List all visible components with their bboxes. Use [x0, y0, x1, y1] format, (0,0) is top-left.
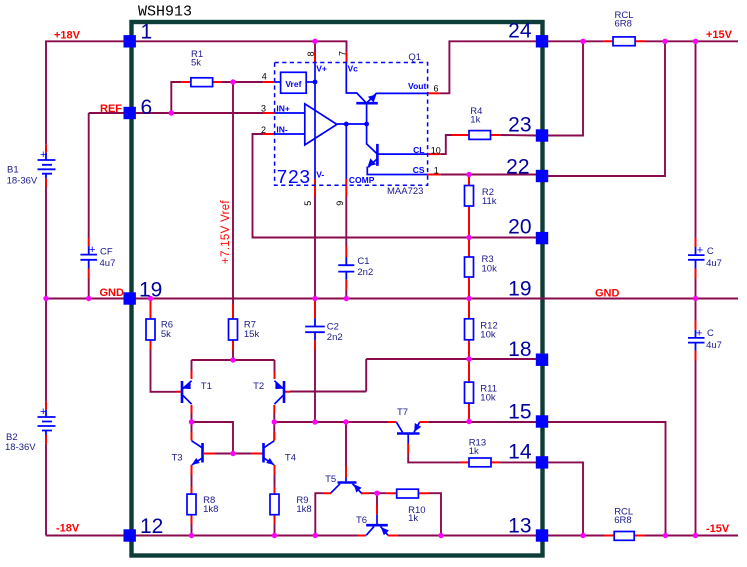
svg-text:CL: CL	[413, 145, 424, 155]
svg-text:T5: T5	[325, 474, 336, 485]
svg-text:4u7: 4u7	[706, 258, 722, 269]
svg-text:9: 9	[335, 201, 345, 206]
svg-text:19: 19	[139, 279, 162, 302]
svg-text:13: 13	[508, 515, 531, 538]
svg-text:+: +	[89, 244, 95, 256]
svg-text:2n2: 2n2	[357, 267, 373, 278]
svg-text:18-36V: 18-36V	[5, 442, 36, 453]
svg-text:Vc: Vc	[348, 63, 359, 73]
svg-text:+: +	[697, 245, 703, 257]
svg-text:1: 1	[434, 165, 439, 175]
svg-text:1k8: 1k8	[296, 504, 311, 515]
svg-text:GND: GND	[100, 287, 125, 299]
svg-text:Q1: Q1	[408, 52, 421, 63]
svg-text:+: +	[40, 149, 46, 161]
svg-text:15k: 15k	[244, 329, 260, 340]
svg-text:GND: GND	[595, 288, 620, 300]
svg-text:CS: CS	[413, 165, 425, 175]
svg-text:15: 15	[508, 401, 531, 424]
svg-text:REF: REF	[100, 103, 122, 115]
svg-text:7: 7	[337, 51, 347, 56]
svg-text:10k: 10k	[480, 330, 496, 341]
svg-text:23: 23	[508, 114, 531, 137]
svg-text:4u7: 4u7	[100, 258, 116, 269]
svg-text:3: 3	[261, 103, 266, 113]
svg-text:6R8: 6R8	[614, 515, 631, 526]
svg-text:Vout: Vout	[408, 81, 426, 91]
svg-text:IN+: IN+	[276, 103, 290, 113]
svg-text:+: +	[696, 328, 702, 340]
svg-text:19: 19	[508, 278, 531, 301]
svg-text:WSH913: WSH913	[138, 4, 192, 21]
svg-text:20: 20	[508, 216, 531, 239]
svg-text:11k: 11k	[482, 196, 497, 207]
svg-text:24: 24	[508, 20, 532, 43]
svg-text:4: 4	[262, 71, 267, 81]
svg-text:6R8: 6R8	[615, 19, 632, 30]
svg-text:C: C	[707, 246, 714, 257]
svg-text:CF: CF	[100, 246, 113, 257]
svg-text:C: C	[707, 328, 714, 339]
svg-text:12: 12	[140, 515, 163, 538]
svg-text:IN-: IN-	[276, 124, 288, 134]
svg-text:-18V: -18V	[56, 523, 80, 535]
svg-text:T6: T6	[356, 515, 367, 526]
svg-text:5: 5	[303, 201, 313, 206]
svg-text:C1: C1	[357, 256, 369, 267]
svg-text:T1: T1	[201, 381, 212, 392]
svg-text:6: 6	[141, 96, 153, 119]
svg-text:10k: 10k	[482, 263, 498, 274]
svg-text:4u7: 4u7	[706, 340, 722, 351]
svg-text:T4: T4	[285, 453, 296, 464]
svg-text:1k: 1k	[469, 446, 479, 457]
svg-text:V+: V+	[316, 63, 327, 73]
svg-text:V-: V-	[316, 170, 324, 180]
svg-text:B1: B1	[7, 164, 19, 175]
svg-text:22: 22	[506, 156, 529, 179]
svg-text:8: 8	[306, 51, 316, 56]
svg-text:10: 10	[431, 145, 441, 155]
svg-text:T2: T2	[253, 381, 264, 392]
svg-text:5k: 5k	[191, 58, 201, 69]
svg-text:MAA723: MAA723	[387, 186, 423, 197]
svg-text:6: 6	[434, 83, 439, 93]
svg-text:C2: C2	[327, 321, 339, 332]
svg-text:1k: 1k	[470, 115, 480, 126]
svg-text:14: 14	[508, 441, 532, 464]
svg-text:723: 723	[276, 167, 310, 189]
svg-text:1k: 1k	[408, 513, 418, 524]
svg-text:T3: T3	[172, 453, 183, 464]
svg-text:T7: T7	[397, 407, 408, 418]
svg-text:+15V: +15V	[706, 29, 733, 41]
svg-text:5k: 5k	[161, 329, 171, 340]
svg-text:10k: 10k	[480, 393, 496, 404]
svg-text:18: 18	[508, 338, 531, 361]
svg-text:2: 2	[261, 125, 266, 135]
svg-text:COMP: COMP	[349, 175, 375, 185]
svg-text:1k8: 1k8	[203, 504, 218, 515]
svg-text:+: +	[40, 406, 46, 418]
svg-text:1: 1	[141, 21, 153, 44]
svg-text:18-36V: 18-36V	[7, 176, 38, 187]
svg-text:+18V: +18V	[54, 30, 81, 42]
svg-text:+7.15V Vref: +7.15V Vref	[220, 200, 232, 264]
svg-text:-15V: -15V	[706, 523, 730, 535]
svg-text:Vref: Vref	[285, 79, 301, 89]
svg-text:2n2: 2n2	[327, 332, 343, 343]
